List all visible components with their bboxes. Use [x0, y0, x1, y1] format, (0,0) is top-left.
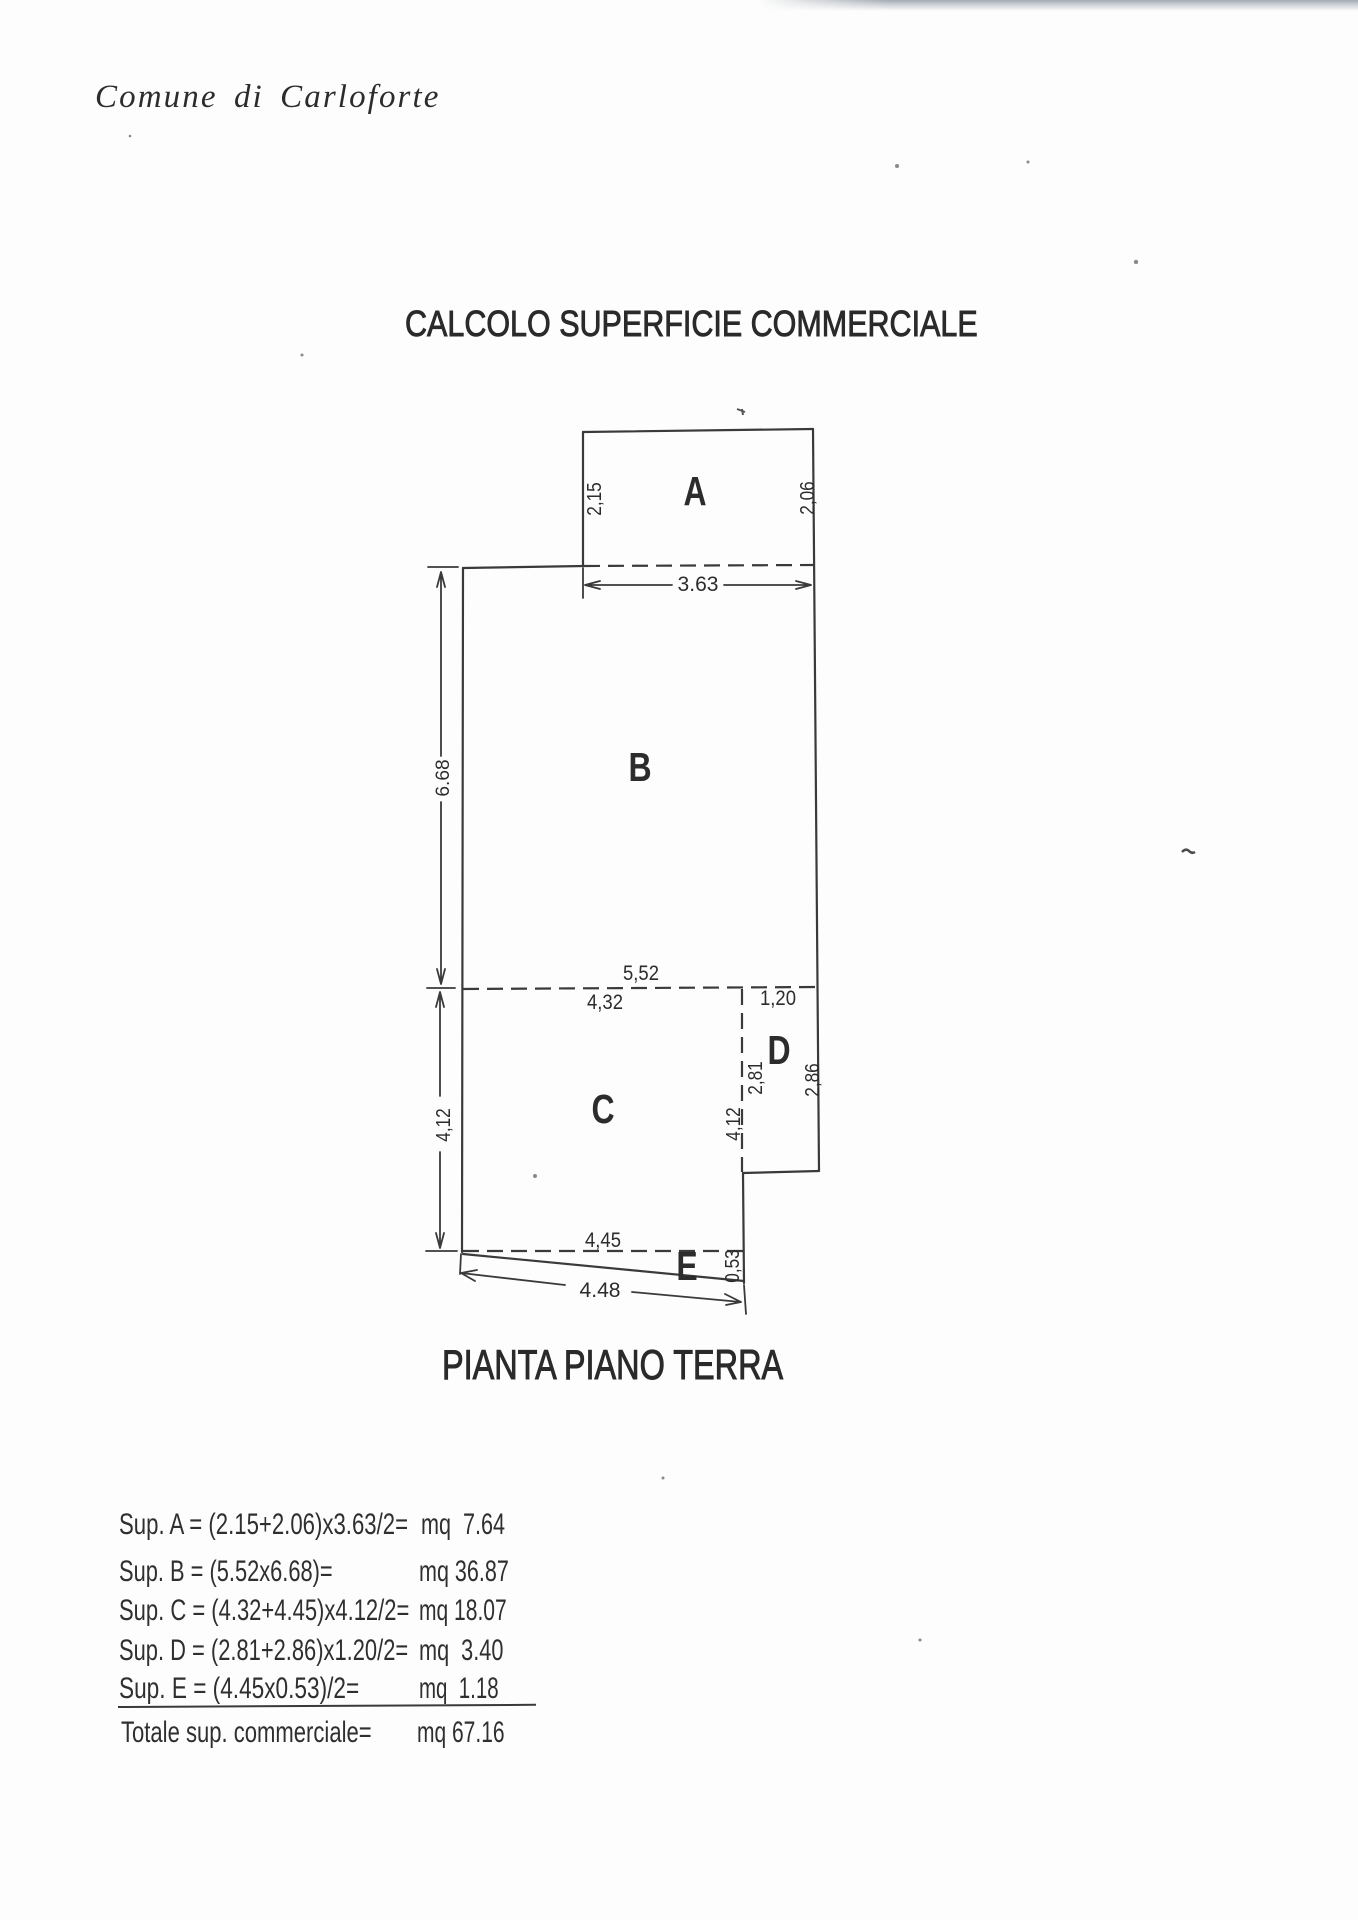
svg-text:C: C [591, 1086, 614, 1132]
svg-text:2,81: 2,81 [744, 1061, 767, 1094]
svg-text:5,52: 5,52 [623, 962, 659, 986]
svg-text:4,12: 4,12 [722, 1107, 745, 1140]
svg-text:3.63: 3.63 [678, 572, 719, 596]
svg-text:4,45: 4,45 [585, 1229, 621, 1253]
svg-text:2,15: 2,15 [583, 482, 606, 515]
svg-text:2,06: 2,06 [796, 481, 819, 514]
svg-text:4,12: 4,12 [432, 1108, 455, 1141]
svg-text:E: E [676, 1243, 697, 1289]
svg-text:0,53: 0,53 [721, 1249, 744, 1282]
svg-text:B: B [628, 744, 651, 790]
svg-text:2,86: 2,86 [801, 1063, 824, 1096]
svg-text:6.68: 6.68 [433, 759, 454, 796]
svg-text:4,32: 4,32 [587, 991, 623, 1015]
svg-text:A: A [683, 468, 706, 514]
svg-text:1,20: 1,20 [760, 987, 796, 1011]
svg-text:D: D [767, 1027, 790, 1073]
svg-text:4.48: 4.48 [580, 1278, 621, 1302]
